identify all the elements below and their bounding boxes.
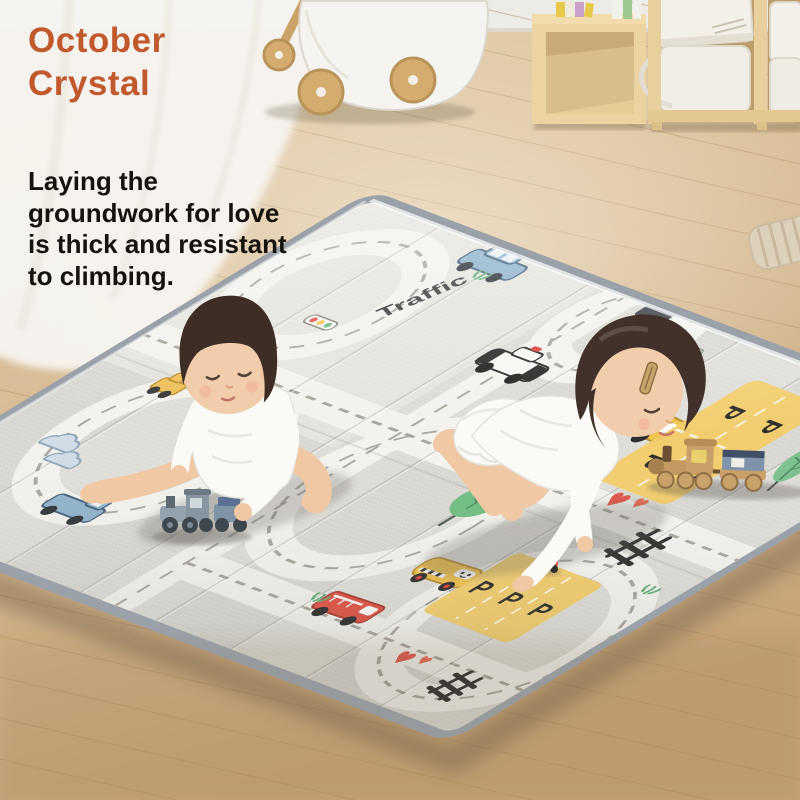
baby1-left-hand [171, 465, 187, 481]
baby2-blush [638, 418, 650, 430]
scene-illustration: Traffic [0, 0, 800, 800]
baby1-right-hand [234, 503, 252, 521]
storage-bin-top-right [770, 2, 800, 62]
storage-shadow [650, 122, 800, 132]
storage-bin-bottom-left [660, 46, 750, 112]
storage-bottom-rail [648, 110, 800, 122]
baby2-left-hand [577, 536, 593, 552]
storage-post [648, 0, 661, 124]
brand-line-2: Crystal [28, 63, 166, 106]
storage-post [754, 0, 767, 124]
tagline-line-3: is thick and resistant [28, 229, 287, 261]
brand-line-1: October [28, 20, 166, 63]
tagline-line-4: to climbing. [28, 261, 287, 293]
bookshelf [532, 0, 646, 130]
tagline-line-2: groundwork for love [28, 198, 287, 230]
storage-bin-top-left [653, 0, 753, 47]
marketing-tagline: Laying the groundwork for love is thick … [28, 166, 287, 293]
storage-unit [641, 0, 800, 132]
wheel-hub [275, 51, 283, 59]
tagline-line-1: Laying the [28, 166, 287, 198]
wheel-hub [408, 75, 418, 85]
storage-leg [652, 122, 662, 130]
vignette [0, 640, 800, 800]
wheel-hub [316, 87, 326, 97]
storage-bin-bottom-right [770, 58, 800, 114]
storage-leg [757, 122, 767, 130]
product-photo-baby-play-mat: Traffic [0, 0, 800, 800]
brand-title: October Crystal [28, 20, 166, 105]
